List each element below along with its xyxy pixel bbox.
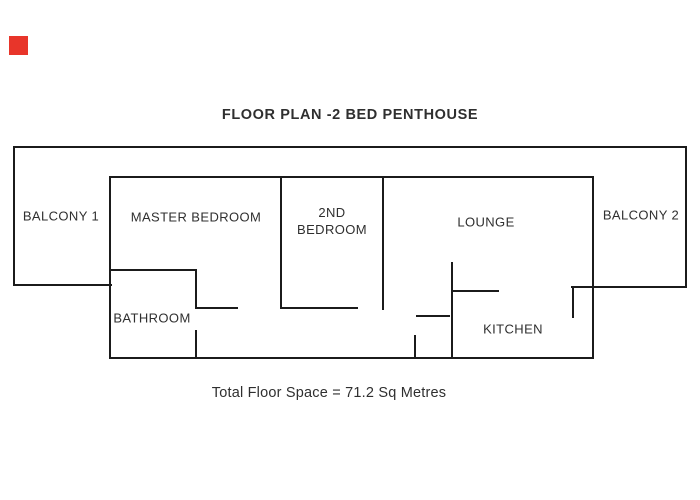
room-label-lounge: LOUNGE (457, 214, 514, 231)
room-label-second-bedroom-line2: BEDROOM (297, 221, 367, 238)
room-label-bathroom: BATHROOM (113, 310, 190, 327)
room-label-second-bedroom-line1: 2ND (297, 204, 367, 221)
floor-plan-page: FLOOR PLAN -2 BED PENTHOUSE BALCONY 1 MA… (0, 0, 700, 500)
total-floor-space-text: Total Floor Space = 71.2 Sq Metres (119, 385, 539, 401)
room-label-balcony-1: BALCONY 1 (23, 208, 99, 225)
room-label-kitchen: KITCHEN (483, 321, 543, 338)
room-label-second-bedroom: 2ND BEDROOM (297, 204, 367, 238)
room-label-balcony-2: BALCONY 2 (603, 207, 679, 224)
floor-plan-drawing (0, 0, 700, 500)
room-label-master-bedroom: MASTER BEDROOM (131, 209, 262, 226)
